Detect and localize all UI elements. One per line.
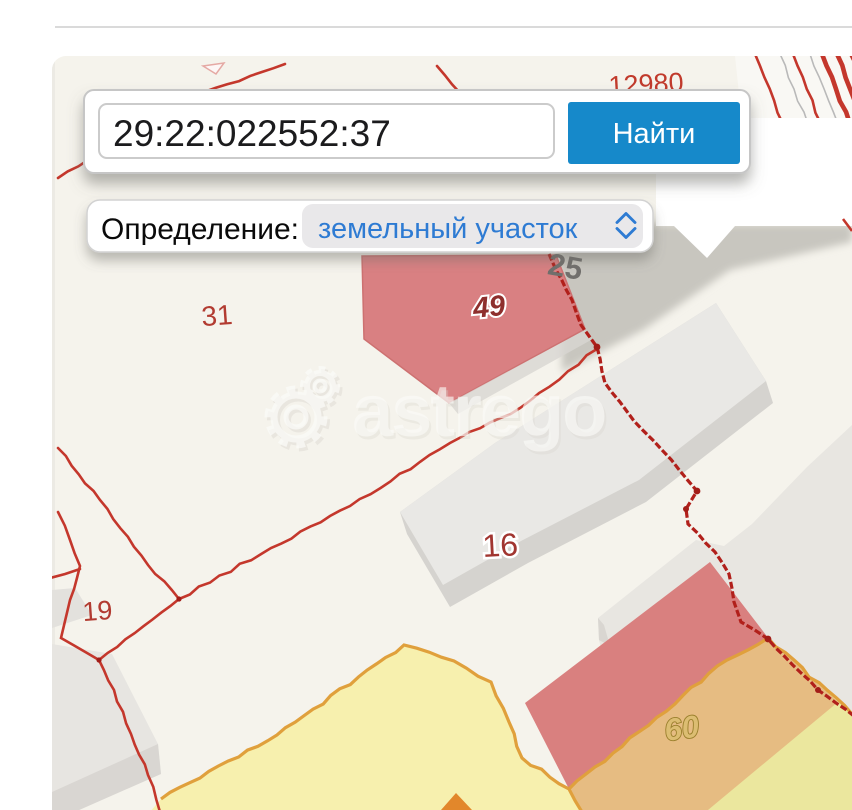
svg-text:земельный участок: земельный участок bbox=[318, 213, 578, 245]
svg-text:16: 16 bbox=[481, 526, 518, 564]
svg-text:19: 19 bbox=[81, 595, 113, 627]
svg-text:29:22:022552:37: 29:22:022552:37 bbox=[113, 113, 391, 154]
svg-text:49: 49 bbox=[470, 290, 506, 325]
svg-text:Найти: Найти bbox=[613, 118, 696, 150]
svg-text:31: 31 bbox=[200, 299, 233, 332]
svg-text:Определение:: Определение: bbox=[101, 213, 299, 246]
svg-text:60: 60 bbox=[662, 708, 701, 747]
svg-text:astrego: astrego bbox=[352, 369, 605, 452]
